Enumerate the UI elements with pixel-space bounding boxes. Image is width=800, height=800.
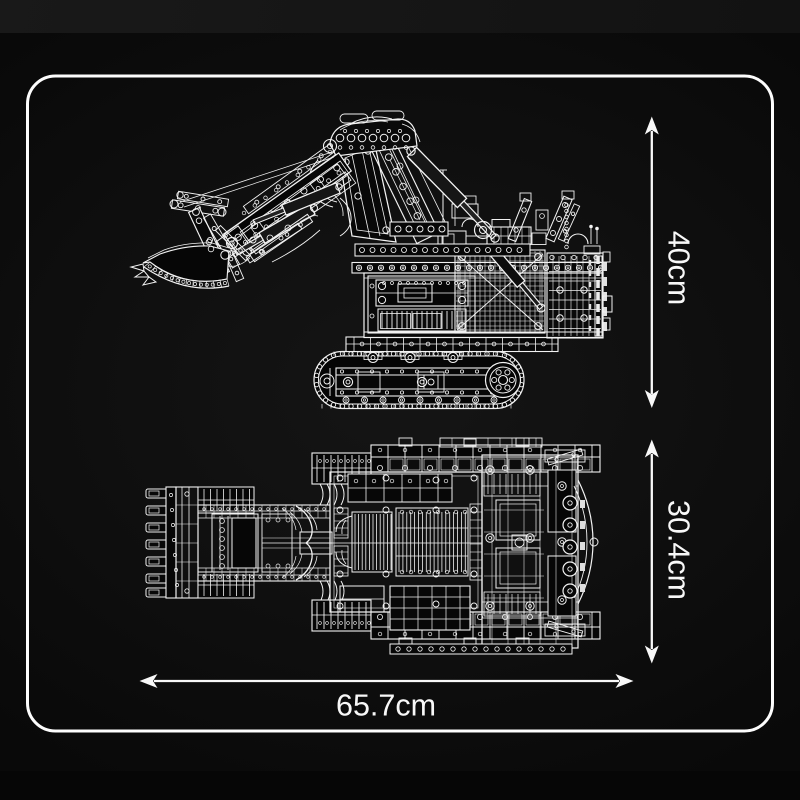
svg-text:40cm: 40cm	[662, 231, 696, 306]
svg-text:65.7cm: 65.7cm	[336, 689, 436, 723]
svg-text:30.4cm: 30.4cm	[662, 500, 696, 600]
